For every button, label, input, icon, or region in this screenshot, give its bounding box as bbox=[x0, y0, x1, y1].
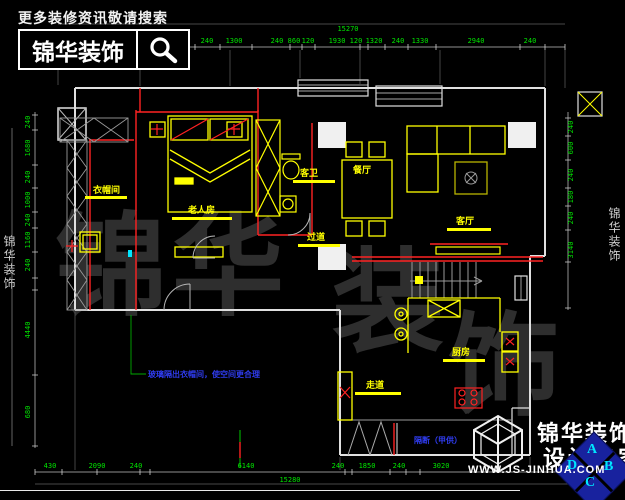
sofa bbox=[407, 126, 505, 192]
svg-text:430: 430 bbox=[44, 462, 57, 470]
svg-text:2940: 2940 bbox=[468, 37, 485, 45]
svg-text:180: 180 bbox=[567, 191, 575, 204]
svg-text:860: 860 bbox=[288, 37, 301, 45]
door-swings bbox=[164, 213, 310, 310]
coffee-table bbox=[455, 162, 487, 194]
compass-letter-a: A bbox=[587, 442, 597, 458]
svg-text:1000: 1000 bbox=[24, 192, 32, 209]
svg-text:2090: 2090 bbox=[89, 462, 106, 470]
dimension-ticks bbox=[32, 44, 578, 475]
annotations: 玻璃隔出衣帽间，使空间更合理 隔断（甲供） bbox=[148, 369, 462, 445]
svg-text:4440: 4440 bbox=[24, 322, 32, 339]
label-elder-bedroom: 老人房 bbox=[187, 204, 215, 216]
svg-text:1300: 1300 bbox=[226, 37, 243, 45]
svg-text:240: 240 bbox=[271, 37, 284, 45]
label-guest-bath: 客卫 bbox=[299, 167, 318, 179]
svg-text:240: 240 bbox=[24, 116, 32, 129]
label-hallway: 过道 bbox=[307, 231, 325, 243]
svg-text:3140: 3140 bbox=[567, 242, 575, 259]
misc-marks bbox=[128, 250, 240, 468]
compass-letter-d: D bbox=[567, 458, 577, 474]
label-dining: 餐厅 bbox=[352, 164, 371, 176]
svg-text:240: 240 bbox=[567, 212, 575, 225]
note-partition-supplied: 隔断（甲供） bbox=[414, 435, 462, 445]
svg-text:240: 240 bbox=[393, 462, 406, 470]
kitchen-counter bbox=[338, 298, 518, 420]
svg-text:240: 240 bbox=[24, 259, 32, 272]
svg-text:15270: 15270 bbox=[337, 25, 358, 33]
label-corridor: 走道 bbox=[365, 379, 384, 391]
svg-text:240: 240 bbox=[567, 169, 575, 182]
compass-letter-b: B bbox=[604, 459, 613, 475]
svg-text:1320: 1320 bbox=[366, 37, 383, 45]
svg-text:600: 600 bbox=[567, 142, 575, 155]
svg-text:1330: 1330 bbox=[412, 37, 429, 45]
dimension-text-left: 240 1680 240 1000 240 1160 240 4440 680 bbox=[24, 116, 32, 419]
svg-text:680: 680 bbox=[24, 406, 32, 419]
svg-text:240: 240 bbox=[201, 37, 214, 45]
label-cloakroom: 衣帽间 bbox=[93, 184, 120, 196]
svg-text:240: 240 bbox=[392, 37, 405, 45]
svg-text:240: 240 bbox=[567, 121, 575, 134]
search-button[interactable] bbox=[136, 29, 190, 70]
svg-text:1930: 1930 bbox=[329, 37, 346, 45]
label-living: 客厅 bbox=[455, 215, 474, 227]
guest-bathroom bbox=[256, 120, 300, 216]
svg-text:1160: 1160 bbox=[24, 232, 32, 249]
svg-text:240: 240 bbox=[130, 462, 143, 470]
svg-text:240: 240 bbox=[332, 462, 345, 470]
svg-text:120: 120 bbox=[350, 37, 363, 45]
compass-letter-c: C bbox=[585, 475, 595, 491]
svg-text:1680: 1680 bbox=[24, 140, 32, 157]
label-kitchen: 厨房 bbox=[452, 346, 470, 358]
dimension-text-bottom: 15280 430 2090 240 6140 240 1850 240 302… bbox=[44, 462, 450, 484]
svg-text:3020: 3020 bbox=[433, 462, 450, 470]
red-partitions bbox=[89, 88, 543, 455]
floorplan-drawing: 15270 1380 240 1300 240 860 120 1930 120… bbox=[0, 0, 625, 500]
brand-text: 锦华装饰 bbox=[32, 33, 124, 67]
svg-text:240: 240 bbox=[24, 171, 32, 184]
note-glass-partition: 玻璃隔出衣帽间，使空间更合理 bbox=[148, 369, 260, 379]
footer-divider bbox=[0, 490, 520, 491]
balcony-doors bbox=[348, 422, 397, 455]
svg-text:1850: 1850 bbox=[359, 462, 376, 470]
svg-text:15280: 15280 bbox=[279, 476, 300, 484]
svg-text:120: 120 bbox=[302, 37, 315, 45]
stove bbox=[340, 338, 514, 408]
outer-walls bbox=[75, 88, 545, 455]
dimension-text-top: 15270 1380 240 1300 240 860 120 1930 120… bbox=[164, 25, 537, 45]
svg-text:240: 240 bbox=[24, 214, 32, 227]
stairs bbox=[410, 262, 482, 298]
svg-text:240: 240 bbox=[524, 37, 537, 45]
brand-box: 锦华装饰 bbox=[18, 29, 138, 70]
dining-table bbox=[342, 142, 392, 236]
search-hint-text: 更多装修资讯敬请搜索 bbox=[18, 8, 168, 28]
cad-floorplan-screenshot: 锦 华 装 饰 锦华装饰 锦华装饰 15270 1380 240 bbox=[0, 0, 625, 500]
tv-cabinet bbox=[436, 247, 500, 254]
wardrobe-hatch bbox=[60, 118, 128, 310]
magnifier-icon bbox=[144, 35, 182, 65]
